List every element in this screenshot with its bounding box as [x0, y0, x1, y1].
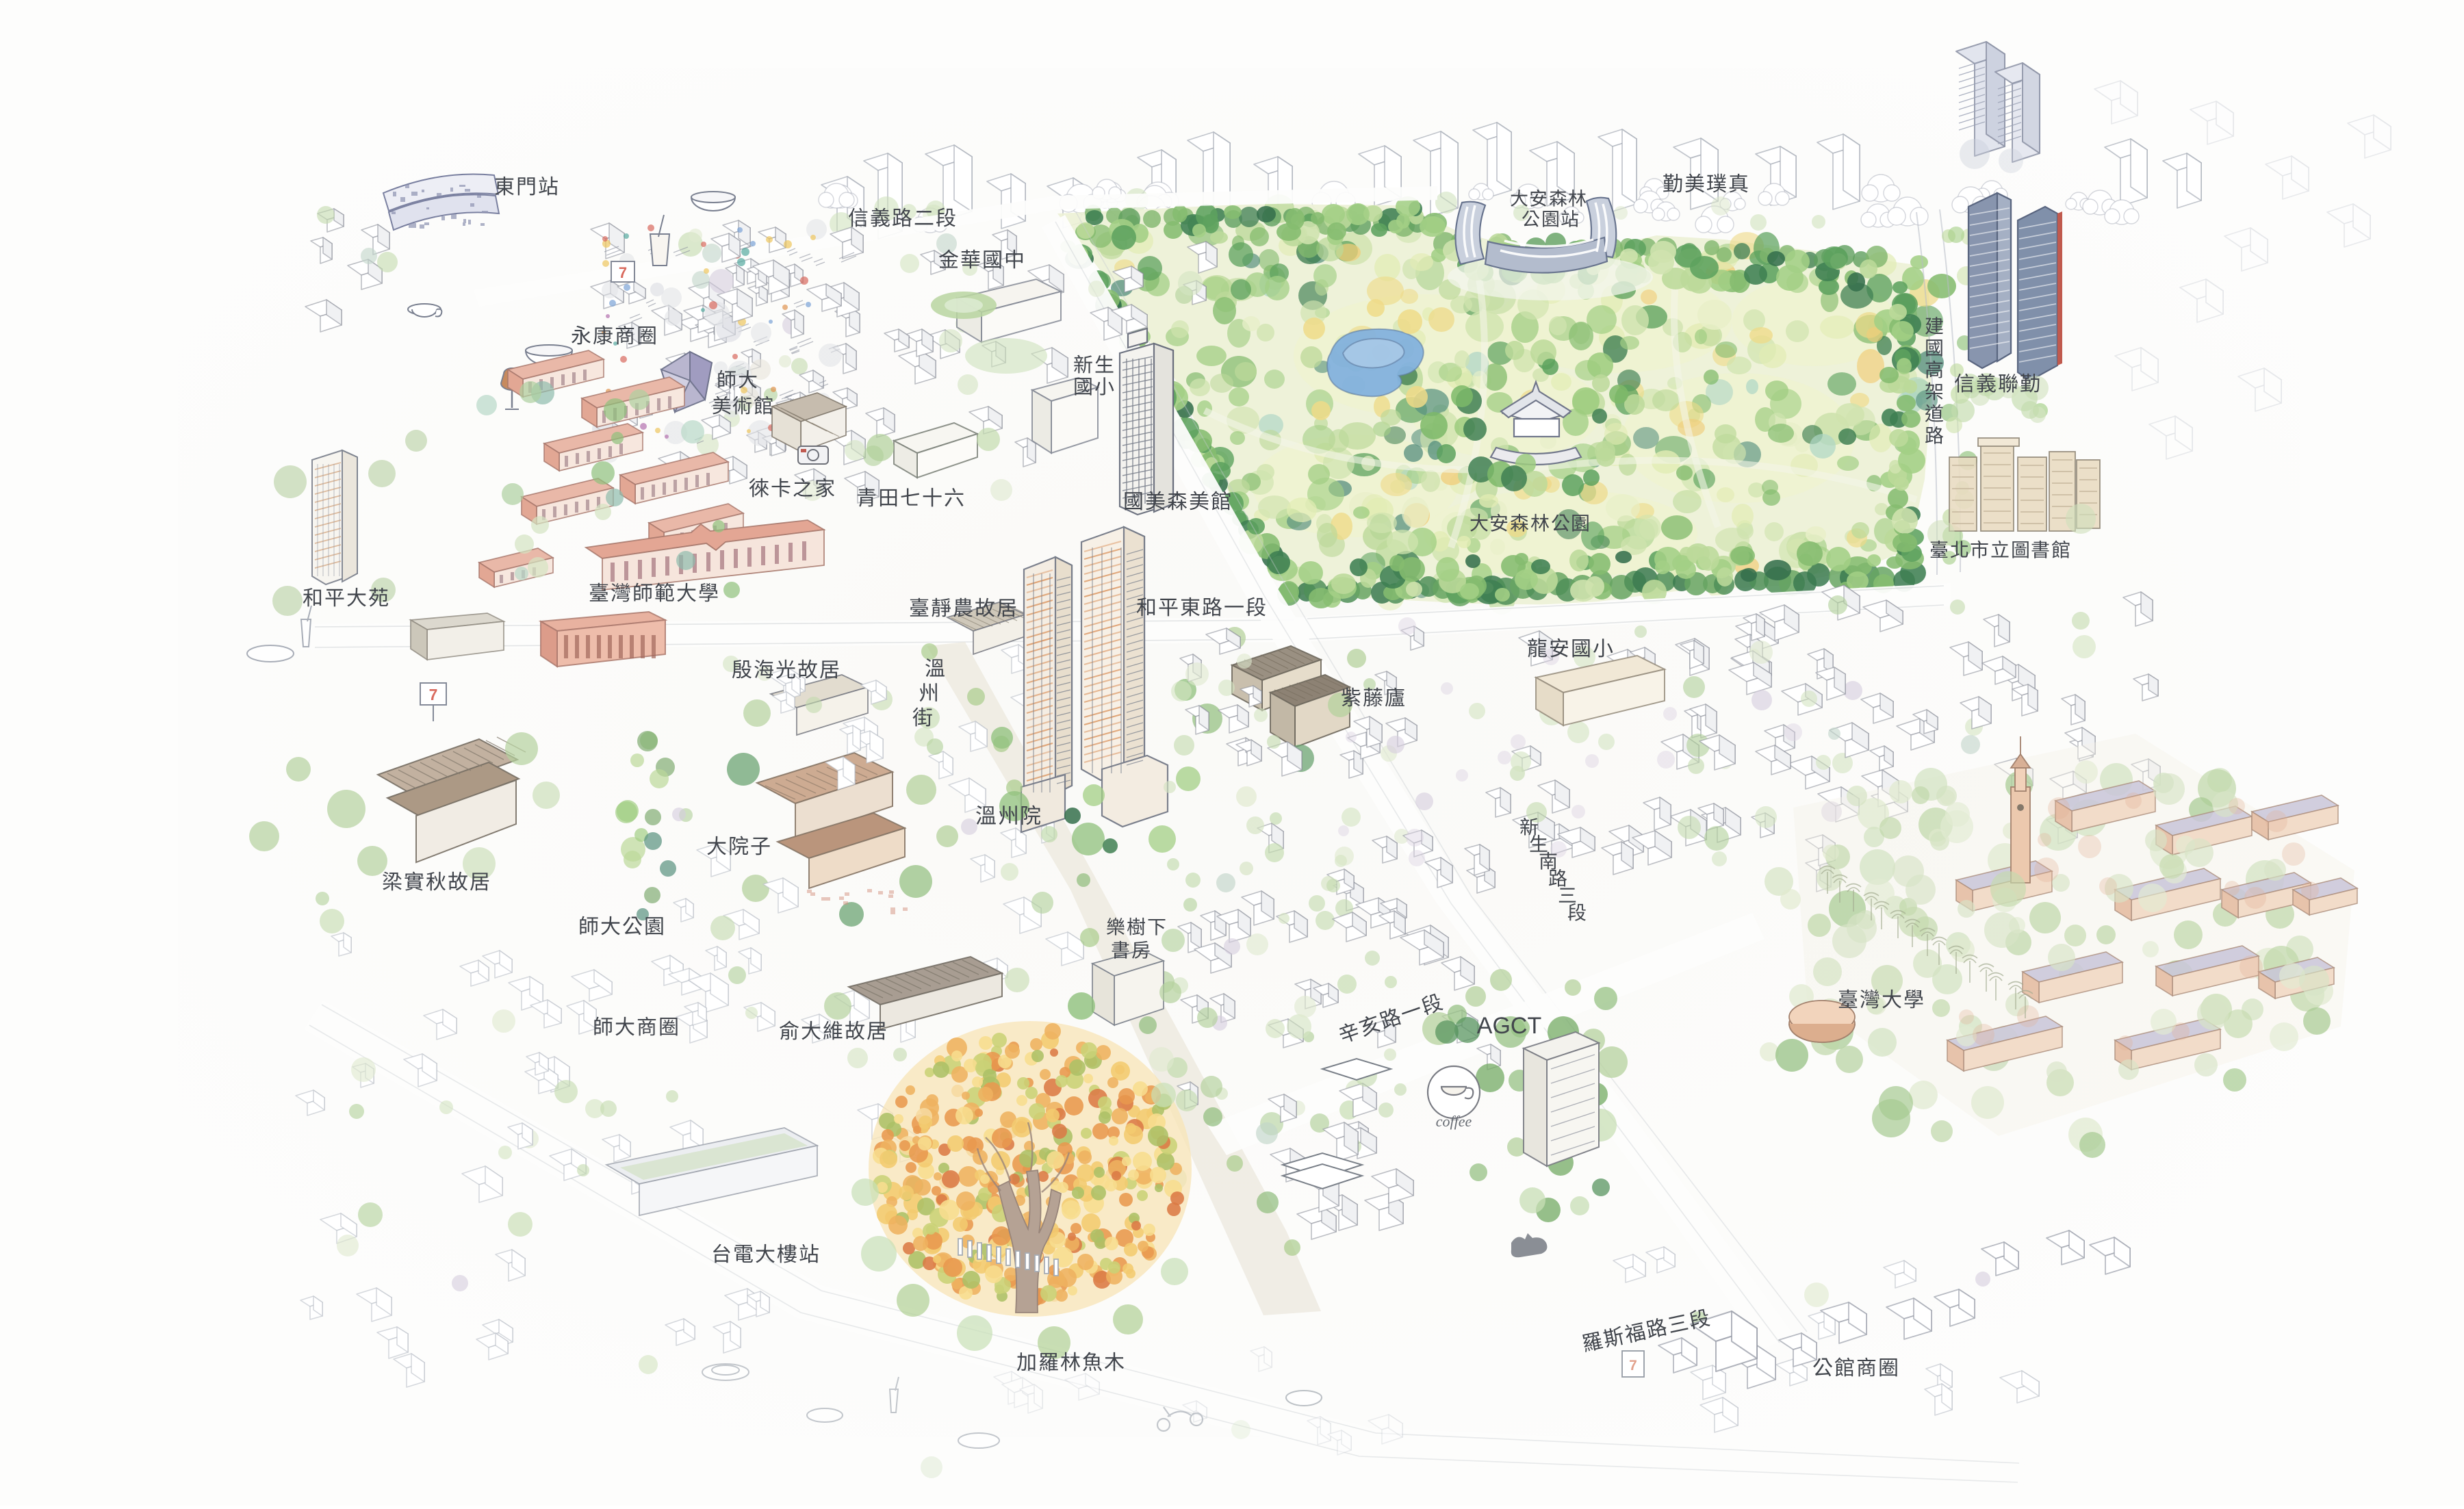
svg-text:7: 7 [1629, 1358, 1637, 1373]
svg-text:AGCT: AGCT [1477, 1013, 1541, 1039]
svg-text:7: 7 [429, 686, 438, 704]
svg-text:7: 7 [619, 264, 627, 281]
svg-text:coffee: coffee [1436, 1113, 1472, 1130]
